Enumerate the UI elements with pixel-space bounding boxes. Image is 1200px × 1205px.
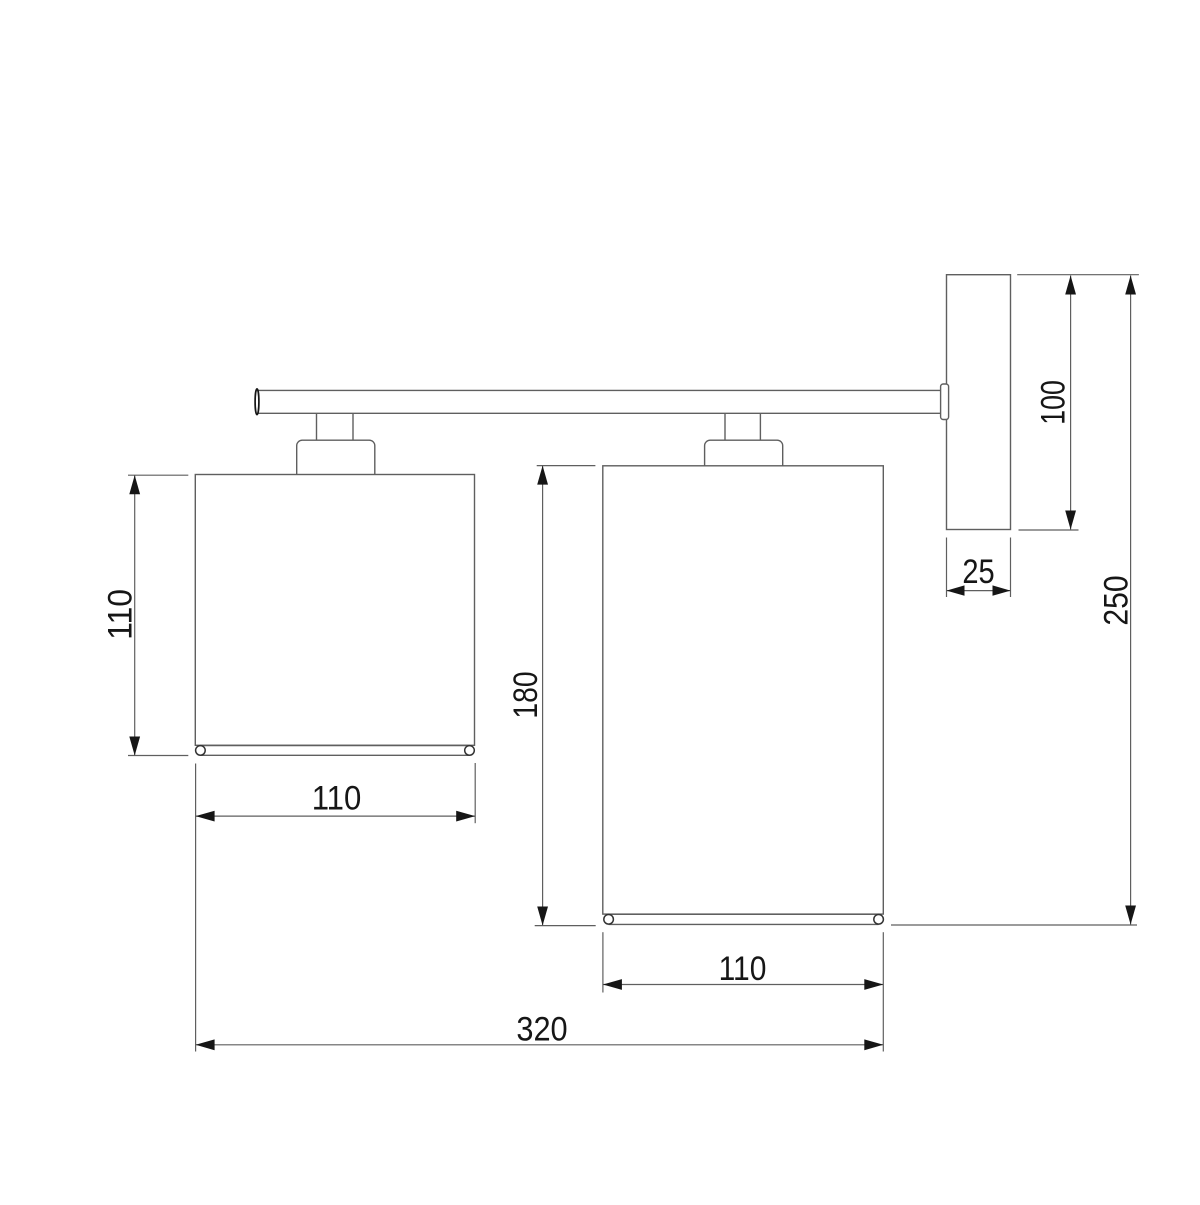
svg-text:250: 250 xyxy=(1097,575,1135,625)
svg-text:180: 180 xyxy=(507,671,545,718)
svg-text:110: 110 xyxy=(719,950,767,988)
svg-text:110: 110 xyxy=(312,779,362,817)
svg-text:320: 320 xyxy=(516,1010,567,1048)
svg-text:100: 100 xyxy=(1035,380,1073,425)
svg-text:25: 25 xyxy=(962,553,994,591)
svg-text:110: 110 xyxy=(102,589,140,640)
